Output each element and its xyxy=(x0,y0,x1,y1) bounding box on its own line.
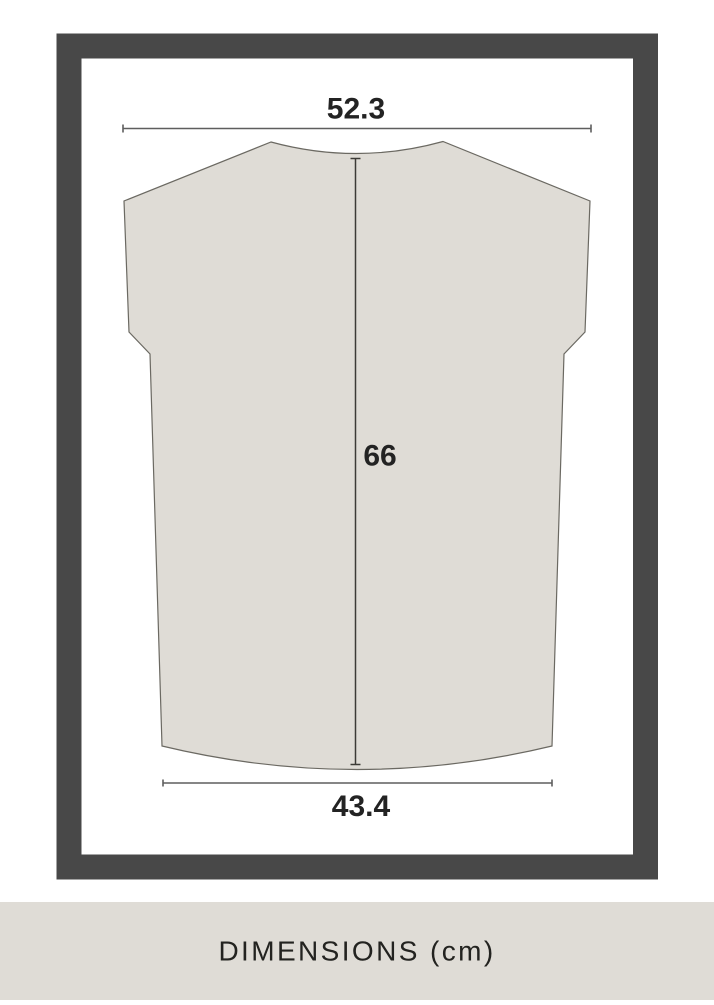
svg-text:DIMENSIONS (cm): DIMENSIONS (cm) xyxy=(218,936,495,967)
svg-text:66: 66 xyxy=(363,439,396,472)
svg-text:52.3: 52.3 xyxy=(327,93,385,126)
svg-text:43.4: 43.4 xyxy=(332,790,391,823)
